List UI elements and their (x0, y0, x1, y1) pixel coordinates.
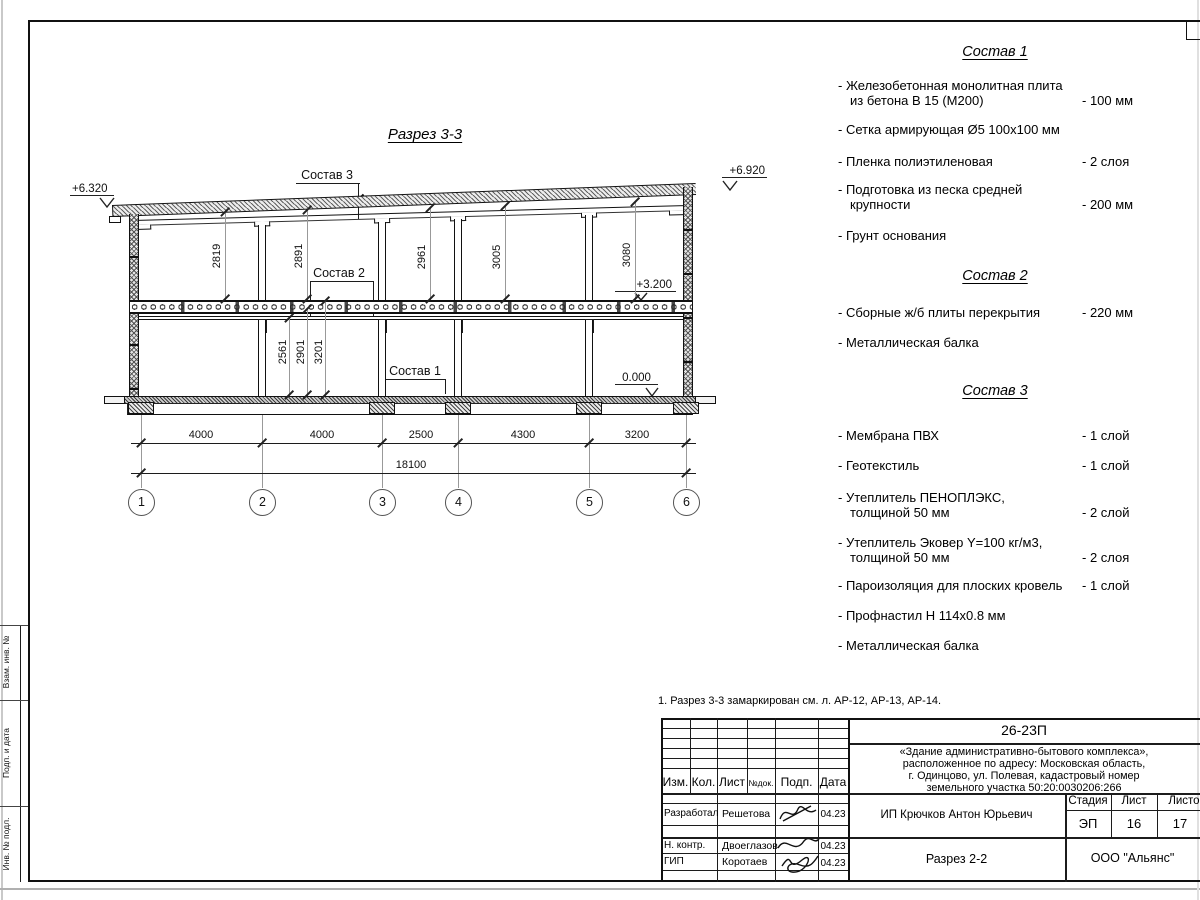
stage-label: Стадия (1065, 795, 1111, 807)
spec-item-text: - Металлическая балка (838, 638, 979, 653)
col-header: Дата (818, 775, 848, 789)
column (454, 320, 462, 397)
spec-item-value: - 200 мм (1082, 197, 1133, 212)
elevation-mark: +6.920 (722, 165, 767, 178)
axis-bubble: 3 (369, 489, 396, 516)
spec-item: - Пленка полиэтиленовая - 2 слоя (838, 154, 1160, 169)
elevation-mark: 0.000 (615, 372, 658, 385)
doc-number: 26-23П (848, 722, 1200, 738)
spec-lists: Состав 1 - Железобетонная монолитная пли… (830, 30, 1160, 680)
elevation-mark: +3.200 (615, 279, 676, 292)
frame-line-top (28, 20, 1200, 22)
leader-line (310, 281, 374, 282)
spec-title: Состав 3 (830, 383, 1160, 399)
dim-line-vert (289, 318, 290, 396)
spec-item: - Профнастил Н 114х0.8 мм (838, 608, 1160, 623)
spec-item-value: - 2 слоя (1082, 154, 1129, 169)
drawing-name: Разрез 2-2 (848, 852, 1065, 866)
spec-item-text: - Профнастил Н 114х0.8 мм (838, 608, 1006, 623)
spec-item-text: толщиной 50 мм (850, 550, 950, 565)
signature-icon (774, 832, 822, 876)
sheets-total: 17 (1157, 816, 1200, 831)
spec-item-text: - Сетка армирующая Ø5 100х100 мм (838, 122, 1060, 137)
spec-item-text: - Грунт основания (838, 228, 946, 243)
stamp-cell-line (0, 625, 28, 626)
stage-value: ЭП (1065, 816, 1111, 831)
spec-item: - Утеплитель Эковер Y=100 кг/м3, толщино… (838, 535, 1160, 550)
signature-name: Решетова (722, 808, 770, 820)
signature-name: Двоеглазов (722, 840, 778, 852)
extension-line (382, 415, 383, 488)
extension-line (589, 415, 590, 488)
dim-line-vert (307, 309, 308, 396)
dim-value: 4300 (493, 429, 553, 441)
spec-item: - Подготовка из песка средней крупности … (838, 182, 1160, 197)
frame-corner-box (1186, 21, 1200, 40)
margin-stamp-label: Подп. и дата (0, 718, 12, 788)
spec-item-text: из бетона В 15 (М200) (850, 93, 984, 108)
dim-value: 2500 (391, 429, 451, 441)
sheet-note: 1. Разрез 3-3 замаркирован см. л. АР-12,… (658, 695, 941, 707)
dim-value: 2901 (295, 332, 307, 372)
spec-item-value: - 100 мм (1082, 93, 1133, 108)
spec-item-text: - Металлическая балка (838, 335, 979, 350)
column (378, 222, 386, 301)
spec-item: - Металлическая балка (838, 335, 1160, 350)
axis-bubble: 6 (673, 489, 700, 516)
spec-item-value: - 220 мм (1082, 305, 1133, 320)
signature-role: ГИП (664, 856, 684, 867)
col-header: Кол. (690, 775, 717, 789)
footing (128, 402, 154, 414)
spec-item: - Сетка армирующая Ø5 100х100 мм (838, 122, 1160, 137)
project-line: «Здание административно-бытового комплек… (850, 746, 1198, 758)
titleblock-line (717, 718, 718, 882)
axis-bubble: 4 (445, 489, 472, 516)
axis-bubble: 2 (249, 489, 276, 516)
signature-name: Коротаев (722, 856, 767, 868)
signature-icon (777, 797, 819, 827)
dim-line-vert (430, 208, 431, 300)
titleblock-line (661, 718, 1200, 720)
wall-right (683, 187, 693, 397)
elevation-mark: +6.320 (70, 183, 114, 196)
titleblock-line (661, 803, 848, 804)
signature-date: 04.23 (818, 858, 848, 869)
leader-line (445, 379, 446, 394)
footing (445, 402, 471, 414)
ground-ledge-left (104, 396, 125, 404)
col-header: Подп. (775, 775, 818, 789)
column (585, 320, 593, 397)
dim-line-vert (307, 210, 308, 300)
footing (576, 402, 602, 414)
project-line: г. Одинцово, ул. Полевая, кадастровый но… (850, 770, 1198, 782)
footing (369, 402, 395, 414)
dim-line-vert (325, 301, 326, 396)
dim-value: 2561 (277, 332, 289, 372)
dim-line-vert (505, 206, 506, 300)
dim-value: 3201 (313, 332, 325, 372)
spec-item: - Утеплитель ПЕНОПЛЭКС, толщиной 50 мм -… (838, 490, 1160, 505)
signature-date: 04.23 (818, 809, 848, 820)
spec-item-text: - Сборные ж/б плиты перекрытия (838, 305, 1040, 320)
titleblock-line (661, 837, 1200, 839)
stamp-cell-line (0, 700, 28, 701)
spec-item-value: - 1 слой (1082, 578, 1130, 593)
spec-item-text: - Пленка полиэтиленовая (838, 154, 993, 169)
spec-item-text: - Железобетонная монолитная плита (838, 78, 1063, 93)
dim-value: 2891 (293, 236, 305, 276)
dim-value: 3005 (491, 237, 503, 277)
dim-value: 3080 (621, 235, 633, 275)
column (258, 225, 266, 301)
titleblock-line (661, 718, 663, 882)
elevation-arrow-icon (722, 180, 738, 191)
project-line: расположенное по адресу: Московская обла… (850, 758, 1198, 770)
frame-line-bottom (28, 880, 1200, 882)
dim-line (131, 443, 696, 444)
drawing-sheet: Взам. инв. № Подп. и дата Инв. № подл. Р… (0, 0, 1200, 900)
dim-line (131, 473, 696, 474)
extension-line (458, 415, 459, 488)
client-name: ИП Крючков Антон Юрьевич (848, 809, 1065, 821)
floor-beam (138, 316, 684, 320)
scan-edge-bottom (0, 888, 1200, 890)
spec-item: - Сборные ж/б плиты перекрытия - 220 мм (838, 305, 1160, 320)
spec-item-value: - 2 слоя (1082, 550, 1129, 565)
spec-item: - Металлическая балка (838, 638, 1160, 653)
signature-role: Н. контр. (664, 840, 705, 851)
stamp-cell-line (20, 625, 21, 882)
column (585, 215, 593, 301)
dim-value: 4000 (292, 429, 352, 441)
sheet-label: Лист (1111, 795, 1157, 807)
dim-value: 2961 (416, 237, 428, 277)
spec-item: - Геотекстиль - 1 слой (838, 458, 1160, 473)
margin-stamp-label: Взам. инв. № (0, 627, 12, 697)
spec-item-text: - Мембрана ПВХ (838, 428, 939, 443)
extension-line (141, 415, 142, 488)
titleblock-line (1065, 810, 1200, 811)
footing (673, 402, 699, 414)
leader-line (385, 379, 446, 380)
section-title: Разрез 3-3 (345, 126, 505, 143)
dim-value: 4000 (171, 429, 231, 441)
spec-title: Состав 2 (830, 268, 1160, 284)
dim-value: 2819 (211, 236, 223, 276)
leader-label: Состав 3 (287, 168, 367, 182)
dim-line-vert (225, 212, 226, 300)
titleblock-line (661, 825, 848, 826)
company-name: ООО "Альянс" (1065, 851, 1200, 865)
ground-band (127, 404, 693, 415)
frame-line-left (28, 20, 30, 882)
spec-item: - Железобетонная монолитная плита из бет… (838, 78, 1160, 93)
leader-label: Состав 1 (375, 364, 455, 378)
spec-item-text: толщиной 50 мм (850, 505, 950, 520)
col-header: Изм. (661, 775, 690, 789)
dim-line-vert (635, 202, 636, 300)
spec-item-value: - 1 слой (1082, 428, 1130, 443)
spec-title: Состав 1 (830, 44, 1160, 60)
spec-item-text: - Геотекстиль (838, 458, 919, 473)
spec-item: - Пароизоляция для плоских кровель - 1 с… (838, 578, 1160, 593)
ground-slab (121, 396, 699, 404)
sheet-number: 16 (1111, 816, 1157, 831)
stamp-cell-line (0, 806, 28, 807)
col-header: Лист (717, 775, 747, 789)
roof-cornice (109, 216, 121, 223)
leader-line (296, 183, 360, 184)
axis-bubble: 5 (576, 489, 603, 516)
leader-label: Состав 2 (299, 266, 379, 280)
spec-item-value: - 2 слой (1082, 505, 1130, 520)
spec-item-value: - 1 слой (1082, 458, 1130, 473)
spec-item-text: - Утеплитель Эковер Y=100 кг/м3, (838, 535, 1042, 550)
spec-item: - Мембрана ПВХ - 1 слой (838, 428, 1160, 443)
margin-stamp-label: Инв. № подл. (0, 809, 12, 879)
axis-bubble: 1 (128, 489, 155, 516)
extension-line (262, 415, 263, 488)
spec-item-text: - Пароизоляция для плоских кровель (838, 578, 1062, 593)
spec-item-text: - Утеплитель ПЕНОПЛЭКС, (838, 490, 1005, 505)
signature-role: Разработал (664, 808, 718, 819)
spec-item-text: крупности (850, 197, 910, 212)
col-header: №док. (747, 778, 775, 788)
dim-value: 18100 (381, 459, 441, 471)
sheets-label: Листов (1157, 795, 1200, 807)
spec-item-text: - Подготовка из песка средней (838, 182, 1022, 197)
column (258, 320, 266, 397)
column (454, 219, 462, 301)
dim-value: 3200 (607, 429, 667, 441)
signature-date: 04.23 (818, 841, 848, 852)
column (378, 320, 386, 397)
titleblock-line (848, 743, 1200, 745)
project-line: земельного участка 50:20:0030206:266 (850, 782, 1198, 794)
floor-slab (130, 300, 692, 314)
extension-line (686, 415, 687, 488)
spec-item: - Грунт основания (838, 228, 1160, 243)
